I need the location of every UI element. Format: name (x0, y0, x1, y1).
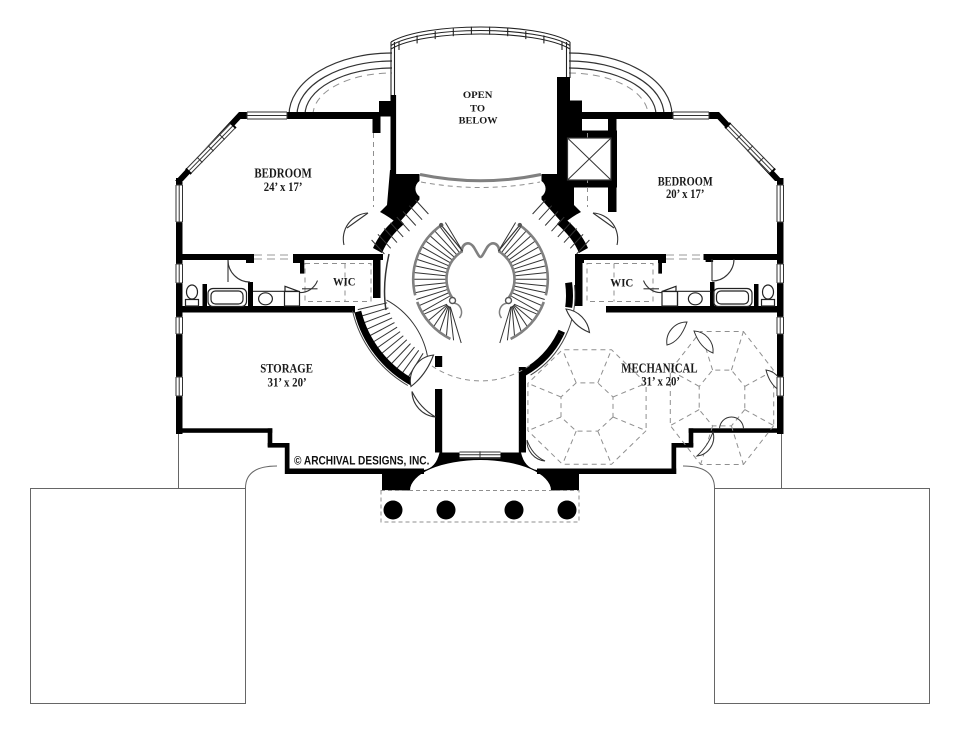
svg-text:31’ x 20’: 31’ x 20’ (268, 374, 307, 389)
svg-text:20’ x 17’: 20’ x 17’ (666, 187, 705, 201)
svg-text:BELOW: BELOW (459, 116, 499, 126)
svg-text:© ARCHIVAL DESIGNS, INC.: © ARCHIVAL DESIGNS, INC. (294, 453, 429, 467)
svg-text:31’ x 20’: 31’ x 20’ (641, 373, 680, 388)
svg-text:24’ x 17’: 24’ x 17’ (264, 179, 303, 194)
svg-text:WIC: WIC (333, 277, 355, 289)
svg-text:TO: TO (470, 105, 485, 115)
svg-text:STORAGE: STORAGE (260, 361, 313, 375)
svg-text:OPEN: OPEN (463, 91, 493, 101)
svg-text:WIC: WIC (610, 278, 633, 290)
